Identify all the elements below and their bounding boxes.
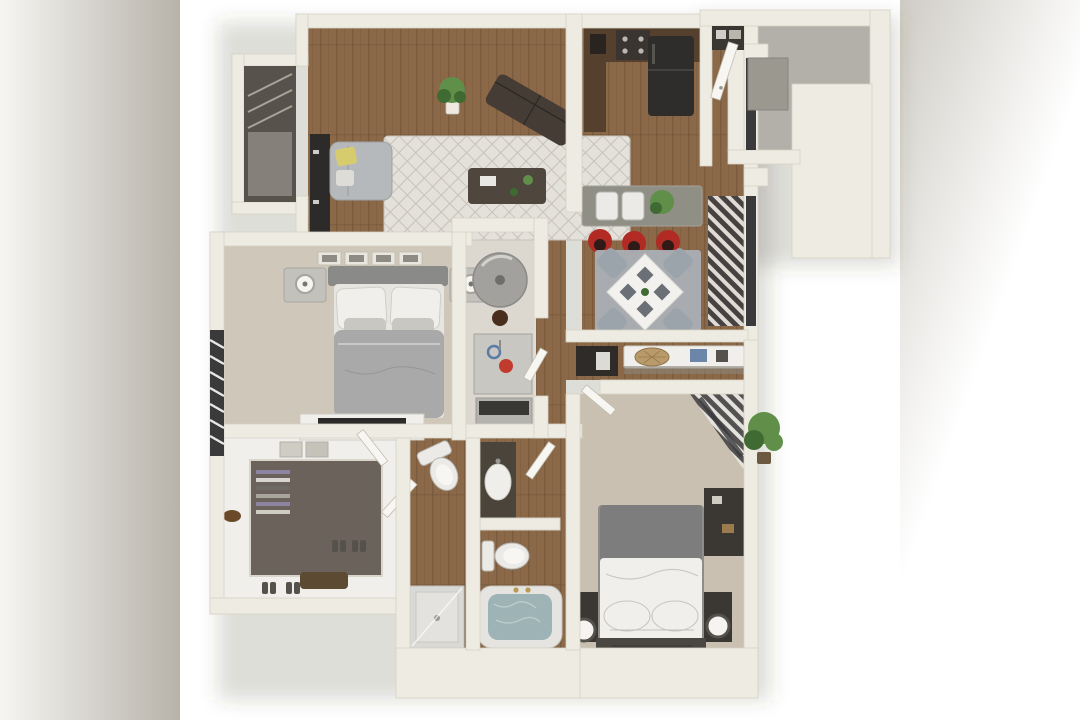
pillow <box>652 601 698 631</box>
wall-segment <box>580 648 758 698</box>
wall-segment <box>700 14 712 166</box>
headboard <box>328 266 448 286</box>
wall-segment <box>396 438 410 652</box>
wall-segment <box>452 218 466 440</box>
wall-segment <box>534 218 548 318</box>
wall-segment <box>600 380 748 394</box>
basket <box>300 572 348 589</box>
balcony-wall <box>728 150 800 164</box>
balcony-wall <box>700 10 890 26</box>
washer-hookup <box>474 334 532 394</box>
hallway <box>576 346 744 376</box>
shelf-item <box>722 524 734 533</box>
table-plant <box>523 175 533 185</box>
media-console <box>310 134 330 240</box>
planter <box>757 452 771 464</box>
tub-faucet <box>513 587 518 592</box>
floorplan-image: 3D rendered floor plan of a two-bedroom,… <box>0 0 1080 720</box>
media-console-item <box>313 150 319 154</box>
loveseat <box>330 142 392 200</box>
linen-item <box>596 352 610 370</box>
wall-segment <box>534 396 548 438</box>
water-heater-cap <box>495 275 505 285</box>
bar-plant <box>650 202 662 214</box>
wall-segment <box>566 14 582 212</box>
book <box>480 176 496 186</box>
sink-basin <box>622 192 644 220</box>
blue-box <box>690 349 707 362</box>
dining-window-glass <box>746 196 756 326</box>
media-console-item <box>313 200 319 204</box>
closet-item <box>223 510 241 522</box>
vanity-sink <box>485 464 511 500</box>
coffee-maker <box>590 34 606 54</box>
round-lamp <box>707 615 729 637</box>
bath-water <box>488 594 552 640</box>
floorplan-svg: 3D rendered floor plan of a two-bedroom,… <box>0 0 1080 720</box>
master-bed <box>334 284 444 418</box>
wall-segment <box>396 648 582 698</box>
faucet <box>618 188 623 193</box>
utility-closet <box>473 253 532 436</box>
lamp-center <box>303 282 308 287</box>
centerpiece <box>641 288 649 296</box>
wall-segment <box>296 14 308 66</box>
balcony-wall <box>792 84 872 258</box>
breakfast-bar <box>582 186 702 226</box>
half-wall-shelf <box>480 518 560 530</box>
console-shadow <box>624 366 744 374</box>
wall-segment <box>566 330 748 342</box>
wall-segment <box>744 340 758 698</box>
faucet <box>496 459 501 464</box>
dining-window-blinds <box>708 196 744 326</box>
master-bedroom-window <box>210 330 224 456</box>
range <box>616 30 650 60</box>
closet-panel <box>248 132 292 196</box>
wall-segment <box>224 424 538 438</box>
wall-segment <box>452 218 548 232</box>
bookshelf <box>704 488 744 556</box>
bathtub <box>478 586 562 648</box>
valve <box>492 310 508 326</box>
pillow <box>604 601 650 631</box>
wall-segment <box>210 598 406 614</box>
shower-stall <box>410 586 464 648</box>
toilet <box>482 541 529 571</box>
bed2 <box>596 505 706 651</box>
wall-segment <box>466 438 480 650</box>
corner-closet <box>244 66 296 202</box>
balcony-floor-horizontal <box>792 26 872 84</box>
fridge-handle <box>652 44 655 64</box>
dark-box <box>716 350 728 362</box>
white-duvet <box>600 558 702 644</box>
tub-faucet <box>525 587 530 592</box>
left-letterbox-bar <box>0 0 180 720</box>
white-pillow <box>336 170 354 186</box>
wall-segment <box>566 394 580 650</box>
gray-blanket <box>600 505 702 561</box>
wall-segment <box>210 232 472 246</box>
exterior-unit <box>744 168 768 186</box>
sink-basin <box>596 192 618 220</box>
balcony-storage-door <box>748 58 788 110</box>
shelf-item <box>712 496 722 504</box>
storage-box <box>306 442 328 457</box>
wall-segment <box>296 14 748 28</box>
yellow-pillow <box>335 146 358 166</box>
wall-segment <box>232 54 244 214</box>
balcony-wall <box>870 10 890 258</box>
walkin-closet-floor <box>250 460 382 576</box>
right-letterbox-bar <box>900 0 1080 720</box>
duvet <box>334 330 444 418</box>
table-plant <box>510 188 518 196</box>
refrigerator <box>648 36 694 116</box>
storage-box <box>280 442 302 457</box>
coffee-table <box>468 168 546 204</box>
